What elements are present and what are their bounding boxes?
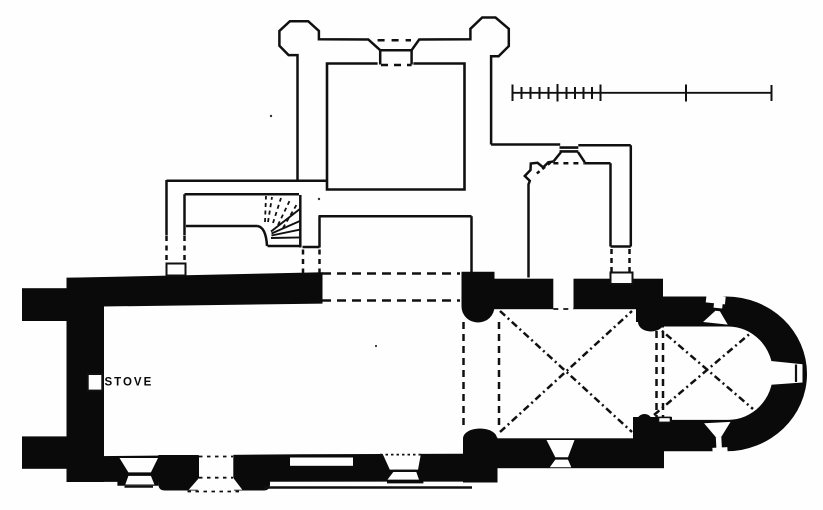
svg-text:STOVE: STOVE [105,377,154,389]
